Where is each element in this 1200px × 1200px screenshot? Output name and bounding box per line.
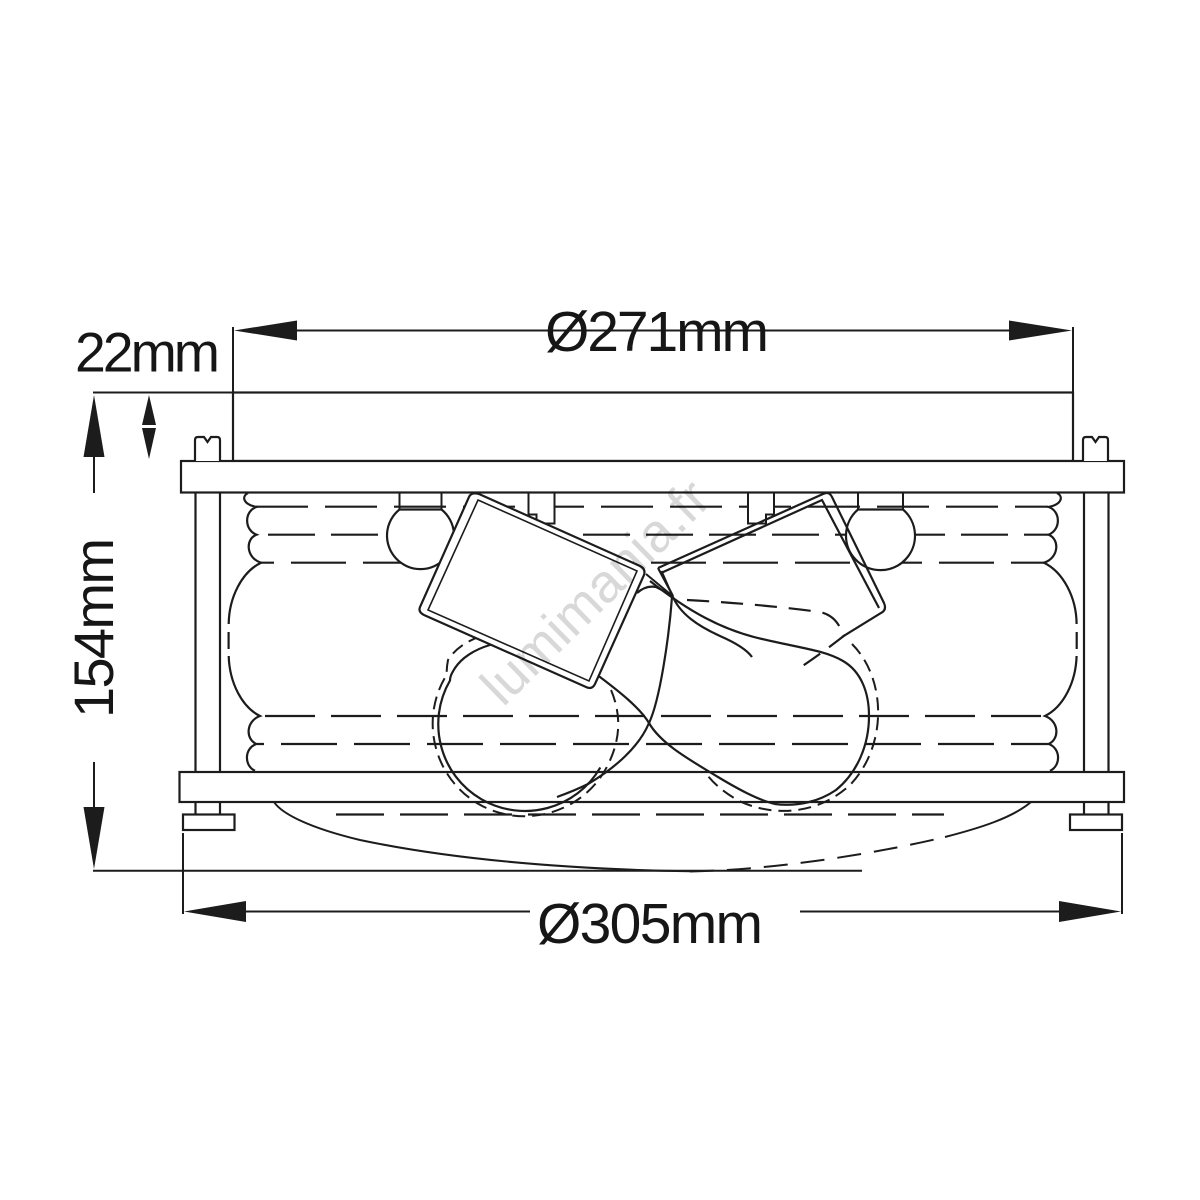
- svg-text:22mm: 22mm: [75, 322, 220, 384]
- svg-text:Ø271mm: Ø271mm: [545, 300, 769, 364]
- svg-text:154mm: 154mm: [62, 538, 125, 718]
- svg-text:Ø305mm: Ø305mm: [537, 892, 763, 956]
